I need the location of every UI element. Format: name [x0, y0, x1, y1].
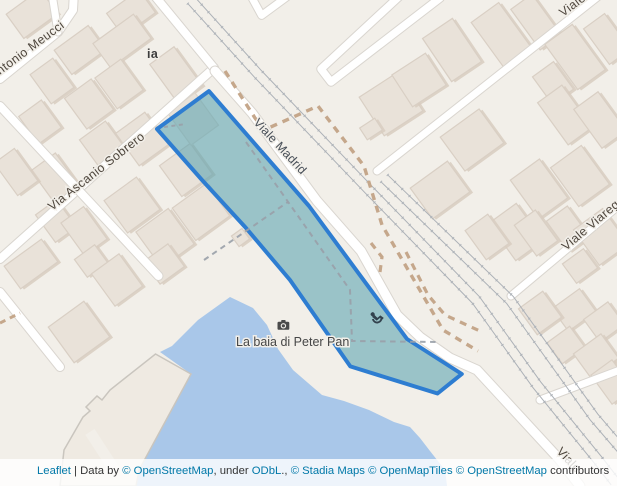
svg-text:ia: ia [147, 47, 159, 61]
svg-text:La baia di Peter Pan: La baia di Peter Pan [236, 335, 349, 349]
